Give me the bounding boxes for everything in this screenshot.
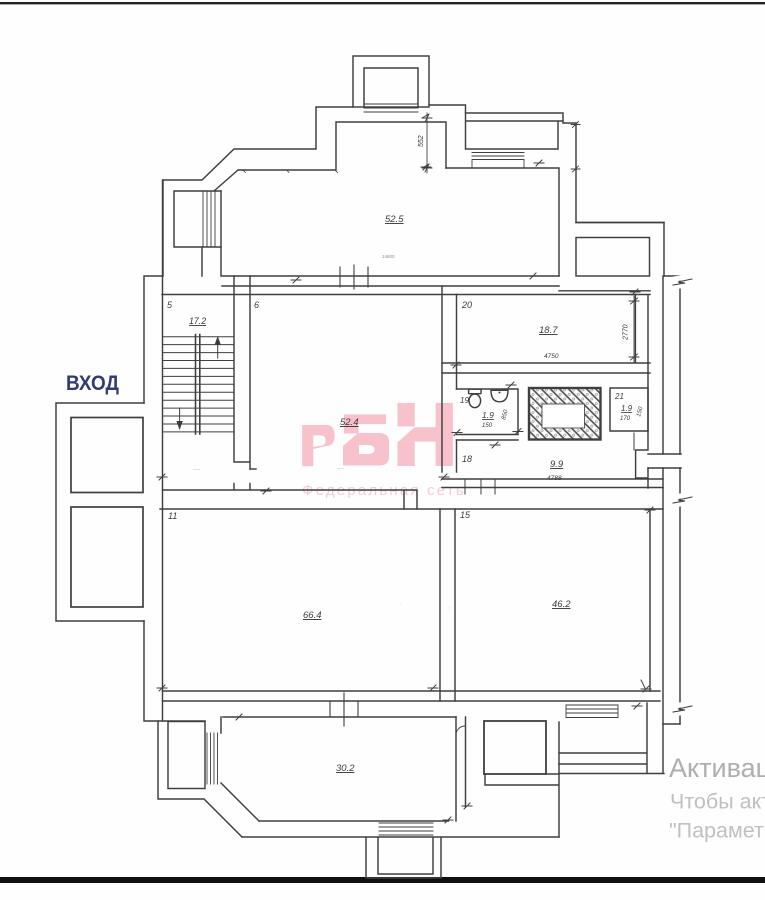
svg-text:150: 150 bbox=[482, 423, 493, 429]
svg-text:4788: 4788 bbox=[547, 475, 562, 482]
svg-text:170: 170 bbox=[620, 416, 631, 422]
svg-text:-----: ----- bbox=[193, 467, 201, 472]
svg-text:150: 150 bbox=[636, 406, 645, 418]
svg-text:"Параметр: "Параметр bbox=[669, 819, 765, 843]
svg-text:52.4: 52.4 bbox=[340, 417, 359, 428]
svg-text:4750: 4750 bbox=[544, 353, 559, 360]
svg-text:30.2: 30.2 bbox=[336, 763, 355, 774]
svg-text:21: 21 bbox=[614, 392, 624, 401]
svg-text:52.5: 52.5 bbox=[385, 214, 404, 225]
svg-text:11: 11 bbox=[168, 511, 177, 521]
svg-text::: : bbox=[449, 606, 450, 611]
svg-text:.: . bbox=[400, 600, 401, 605]
svg-text:66.4: 66.4 bbox=[303, 610, 322, 621]
svg-text:18.7: 18.7 bbox=[539, 325, 558, 336]
svg-text:-----: ----- bbox=[337, 466, 345, 471]
svg-text:20: 20 bbox=[461, 300, 472, 310]
svg-text:Чтобы акт: Чтобы акт bbox=[670, 790, 765, 814]
svg-text:1.9: 1.9 bbox=[482, 410, 494, 420]
svg-text:14600: 14600 bbox=[382, 254, 395, 259]
svg-text:19: 19 bbox=[460, 396, 469, 405]
svg-text:ВХОД: ВХОД bbox=[66, 372, 119, 395]
svg-text:2770: 2770 bbox=[623, 324, 630, 341]
svg-text:552: 552 bbox=[418, 135, 425, 147]
svg-text:Активац: Активац bbox=[669, 753, 765, 783]
svg-text:9.9: 9.9 bbox=[550, 459, 564, 470]
svg-text:17.2: 17.2 bbox=[189, 316, 206, 326]
svg-text:850: 850 bbox=[501, 409, 510, 421]
svg-text:15: 15 bbox=[460, 510, 471, 520]
svg-text:6: 6 bbox=[254, 300, 259, 310]
svg-text:18: 18 bbox=[462, 454, 472, 464]
svg-text:1.9: 1.9 bbox=[621, 404, 633, 413]
svg-text:46.2: 46.2 bbox=[552, 599, 571, 610]
svg-text:5: 5 bbox=[167, 300, 173, 310]
